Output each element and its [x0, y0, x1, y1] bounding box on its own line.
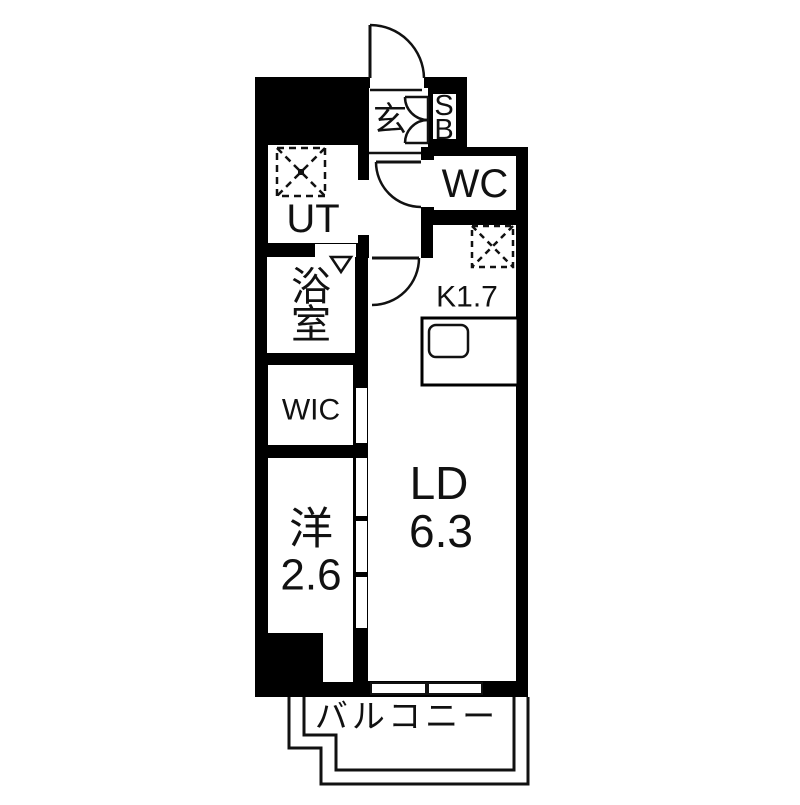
- entrance-door-icon: [370, 25, 424, 78]
- living-dining-label: LD: [410, 457, 469, 509]
- balcony-window-icon: [371, 683, 482, 694]
- sliding-door-divider: [356, 516, 367, 521]
- sliding-door-divider: [356, 572, 367, 577]
- closet-label: WIC: [282, 394, 340, 427]
- utility-door-opening: [358, 180, 370, 235]
- kitchen-counter: [422, 318, 518, 385]
- room-western-extension: [323, 633, 353, 682]
- living-dining-size: 6.3: [409, 505, 473, 557]
- closet-door-opening: [356, 388, 367, 443]
- bathroom-label-line2: 室: [291, 303, 331, 347]
- western-room-size: 2.6: [280, 551, 341, 600]
- kitchen-label: K1.7: [436, 281, 498, 314]
- shoebox-label-b: B: [434, 114, 453, 146]
- floor-plan-svg: 玄 S B WC UT 浴 室 K1.7 WIC 洋 2.6 LD 6.3 バル…: [0, 0, 800, 800]
- balcony-label: バルコニー: [315, 698, 499, 735]
- western-room-label: 洋: [289, 505, 333, 554]
- kitchen-sink-icon: [429, 325, 468, 357]
- utility-label: UT: [286, 197, 339, 241]
- floor-plan: 玄 S B WC UT 浴 室 K1.7 WIC 洋 2.6 LD 6.3 バル…: [0, 0, 800, 800]
- entrance-label: 玄: [373, 101, 407, 139]
- toilet-label: WC: [442, 162, 509, 206]
- sliding-door-panels: [356, 458, 367, 628]
- bathroom-door-opening: [315, 244, 356, 257]
- toilet-door-opening: [418, 160, 434, 207]
